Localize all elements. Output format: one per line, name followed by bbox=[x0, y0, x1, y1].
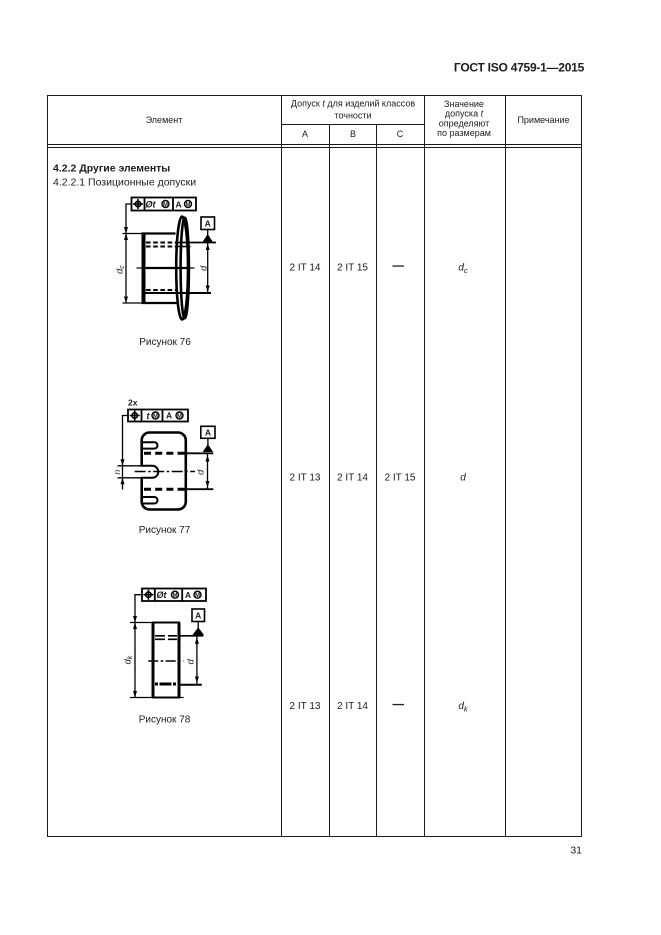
svg-text:M: M bbox=[186, 203, 191, 209]
svg-text:Рисунок 78: Рисунок 78 bbox=[139, 715, 191, 726]
svg-text:4.2.2.1 Позиционные допуски: 4.2.2.1 Позиционные допуски bbox=[53, 177, 196, 189]
svg-text:2 IT 14: 2 IT 14 bbox=[290, 263, 321, 274]
svg-text:A: A bbox=[185, 590, 191, 600]
svg-text:Допуск t для изделий классов: Допуск t для изделий классов bbox=[291, 98, 415, 108]
svg-text:31: 31 bbox=[570, 845, 582, 857]
svg-text:A: A bbox=[176, 200, 182, 210]
svg-text:n: n bbox=[112, 470, 122, 475]
svg-text:ГОСТ ISO 4759-1—2015: ГОСТ ISO 4759-1—2015 bbox=[454, 61, 585, 75]
svg-text:M: M bbox=[173, 593, 178, 599]
svg-text:В: В bbox=[350, 129, 356, 139]
svg-text:допуска t: допуска t bbox=[445, 109, 484, 119]
svg-text:2 IT 14: 2 IT 14 bbox=[337, 701, 368, 712]
svg-text:С: С bbox=[397, 129, 404, 139]
svg-text:А: А bbox=[302, 129, 308, 139]
svg-text:4.2.2 Другие элементы: 4.2.2 Другие элементы bbox=[53, 163, 170, 175]
svg-text:A: A bbox=[166, 411, 172, 421]
svg-text:A: A bbox=[195, 611, 201, 621]
svg-text:M: M bbox=[177, 414, 182, 420]
svg-text:Рисунок 77: Рисунок 77 bbox=[139, 525, 191, 536]
svg-text:определяют: определяют bbox=[439, 118, 489, 128]
svg-text:d: d bbox=[196, 469, 207, 475]
svg-text:Значение: Значение bbox=[444, 99, 484, 109]
svg-text:Примечание: Примечание bbox=[517, 115, 569, 125]
svg-text:M: M bbox=[195, 593, 200, 599]
svg-text:точности: точности bbox=[334, 110, 371, 120]
svg-text:2 IT 14: 2 IT 14 bbox=[337, 473, 368, 484]
svg-text:2 IT 13: 2 IT 13 bbox=[290, 701, 321, 712]
svg-text:2 IT 15: 2 IT 15 bbox=[385, 473, 416, 484]
svg-text:A: A bbox=[205, 428, 211, 438]
svg-text:M: M bbox=[163, 203, 168, 209]
svg-text:2 IT 15: 2 IT 15 bbox=[337, 263, 368, 274]
svg-text:M: M bbox=[153, 414, 158, 420]
svg-text:Øt: Øt bbox=[157, 590, 168, 600]
svg-text:A: A bbox=[205, 219, 211, 229]
svg-text:Элемент: Элемент bbox=[146, 115, 183, 125]
svg-text:2x: 2x bbox=[128, 398, 138, 408]
svg-text:по размерам: по размерам bbox=[437, 128, 491, 138]
svg-text:Рисунок 76: Рисунок 76 bbox=[139, 337, 191, 348]
svg-text:2 IT 13: 2 IT 13 bbox=[290, 473, 321, 484]
svg-text:Øt: Øt bbox=[146, 200, 157, 210]
svg-text:d: d bbox=[186, 659, 197, 665]
svg-text:d: d bbox=[199, 265, 210, 271]
svg-text:d: d bbox=[460, 473, 466, 484]
